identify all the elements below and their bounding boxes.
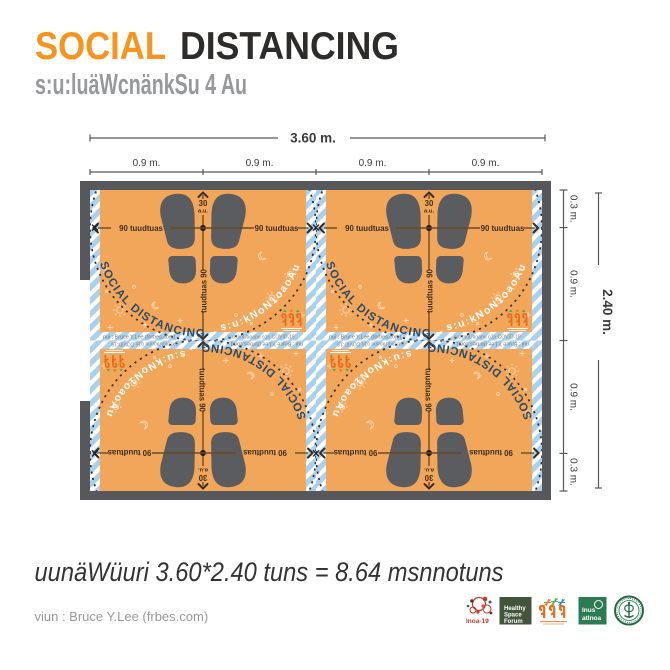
svg-text:3.60 m.: 3.60 m. (290, 131, 336, 146)
svg-text:viun : Bruce Y.Lee (frbes.com): viun : Bruce Y.Lee (frbes.com) (35, 609, 209, 624)
svg-text:atInoa: atInoa (582, 615, 602, 622)
svg-text:s:u:luäWcnänkSu 4 Au: s:u:luäWcnänkSu 4 Au (35, 69, 247, 101)
svg-text:Healthy: Healthy (504, 606, 526, 612)
svg-text:uunäWüuri 3.60*2.40 tuns = 8.6: uunäWüuri 3.60*2.40 tuns = 8.64 msnnotun… (35, 557, 504, 587)
svg-text:2.40 m.: 2.40 m. (600, 289, 615, 335)
svg-text:Forum: Forum (504, 619, 523, 625)
svg-text:0.9 m.: 0.9 m. (133, 158, 161, 169)
svg-text:Space: Space (504, 613, 522, 619)
svg-text:0.9 m.: 0.9 m. (472, 158, 500, 169)
svg-text:0.9 m.: 0.9 m. (359, 158, 387, 169)
svg-text:DISTANCING: DISTANCING (180, 25, 399, 68)
svg-text:0.3 m.: 0.3 m. (568, 195, 579, 223)
svg-text:Inoa-19: Inoa-19 (466, 618, 489, 625)
svg-text:SOCIAL: SOCIAL (35, 25, 166, 68)
svg-text:0.9 m.: 0.9 m. (568, 270, 579, 298)
svg-text:0.9 m.: 0.9 m. (246, 158, 274, 169)
svg-text:Inus: Inus (582, 607, 596, 614)
svg-text:0.9 m.: 0.9 m. (568, 383, 579, 411)
svg-text:0.3 m.: 0.3 m. (568, 458, 579, 486)
